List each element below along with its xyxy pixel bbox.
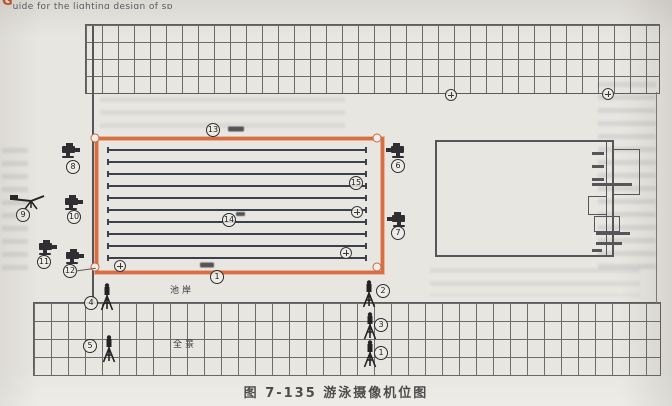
header-drop-cap: G (2, 0, 13, 9)
broadcast-camera-icon (34, 240, 60, 256)
camera-number-badge: 5 (83, 339, 97, 353)
lane-rope (109, 245, 365, 247)
camera-position-marker (445, 89, 457, 101)
camera-position-marker (602, 88, 614, 100)
camera-number-badge: 9 (16, 208, 30, 222)
area-label: 池岸 (170, 283, 194, 296)
camera-number-badge: 3 (374, 318, 388, 332)
camera-number-badge: 7 (391, 226, 405, 240)
camera-number-badge: 15 (349, 176, 363, 190)
stands-grid-top (85, 24, 660, 94)
broadcast-camera-icon (61, 249, 87, 265)
tripod-camera-icon (99, 283, 115, 311)
header-title-text: uide for the lighting design of sp (13, 2, 173, 9)
camera-number-badge: 10 (67, 210, 81, 224)
pool-corner-marker (373, 263, 382, 272)
tripod-camera-icon (101, 335, 117, 363)
left-wall-line (92, 26, 94, 303)
bleed-through-text (430, 268, 640, 296)
camera-position-marker (351, 206, 363, 218)
lane-rope (109, 209, 365, 211)
lane-rope (109, 221, 365, 223)
area-label: 全景 (173, 337, 197, 350)
lane-rope (109, 161, 365, 163)
lane-rope (109, 197, 365, 199)
camera-number-badge: 13 (206, 123, 220, 137)
pool-corner-marker (91, 134, 100, 143)
diving-platform (594, 216, 620, 232)
broadcast-camera-icon (383, 143, 409, 159)
lane-rope (109, 185, 365, 187)
springboard (596, 242, 622, 245)
crane-camera-icon (10, 192, 46, 210)
camera-number-badge: 14 (222, 213, 236, 227)
camera-number-badge: 4 (84, 296, 98, 310)
pool-corner-marker (373, 134, 382, 143)
bleed-through-text (100, 97, 345, 133)
lane-rope (109, 149, 365, 151)
camera-number-badge: 11 (37, 255, 51, 269)
broadcast-camera-icon (60, 195, 86, 211)
illegible-label (228, 127, 244, 132)
diving-platform (588, 196, 607, 215)
broadcast-camera-icon (57, 143, 83, 159)
camera-number-badge: 12 (63, 264, 77, 278)
camera-position-marker (340, 247, 352, 259)
right-boundary-line (656, 92, 657, 303)
springboard (592, 249, 602, 252)
stands-grid-bottom (33, 302, 661, 376)
springboard (592, 152, 604, 155)
lane-rope (109, 233, 365, 235)
figure-caption: 图 7-135 游泳摄像机位图 (0, 382, 672, 401)
scanned-page: { "page": { "header_initial": "G", "head… (0, 0, 672, 406)
pool-lanes (98, 140, 381, 271)
illegible-label (200, 263, 214, 268)
springboard (596, 232, 630, 235)
running-header: Guide for the lighting design of sp (2, 0, 302, 9)
illegible-label (236, 212, 245, 216)
springboard (592, 165, 604, 168)
springboard (592, 178, 604, 181)
diving-platform (612, 149, 640, 195)
camera-number-badge: 1 (210, 270, 224, 284)
camera-number-badge: 1 (374, 346, 388, 360)
lane-rope (109, 173, 365, 175)
camera-position-marker (114, 260, 126, 272)
tripod-camera-icon (361, 280, 377, 308)
camera-number-badge: 8 (66, 160, 80, 174)
lane-rope (109, 257, 365, 259)
camera-number-badge: 2 (376, 284, 390, 298)
camera-number-badge: 6 (391, 159, 405, 173)
